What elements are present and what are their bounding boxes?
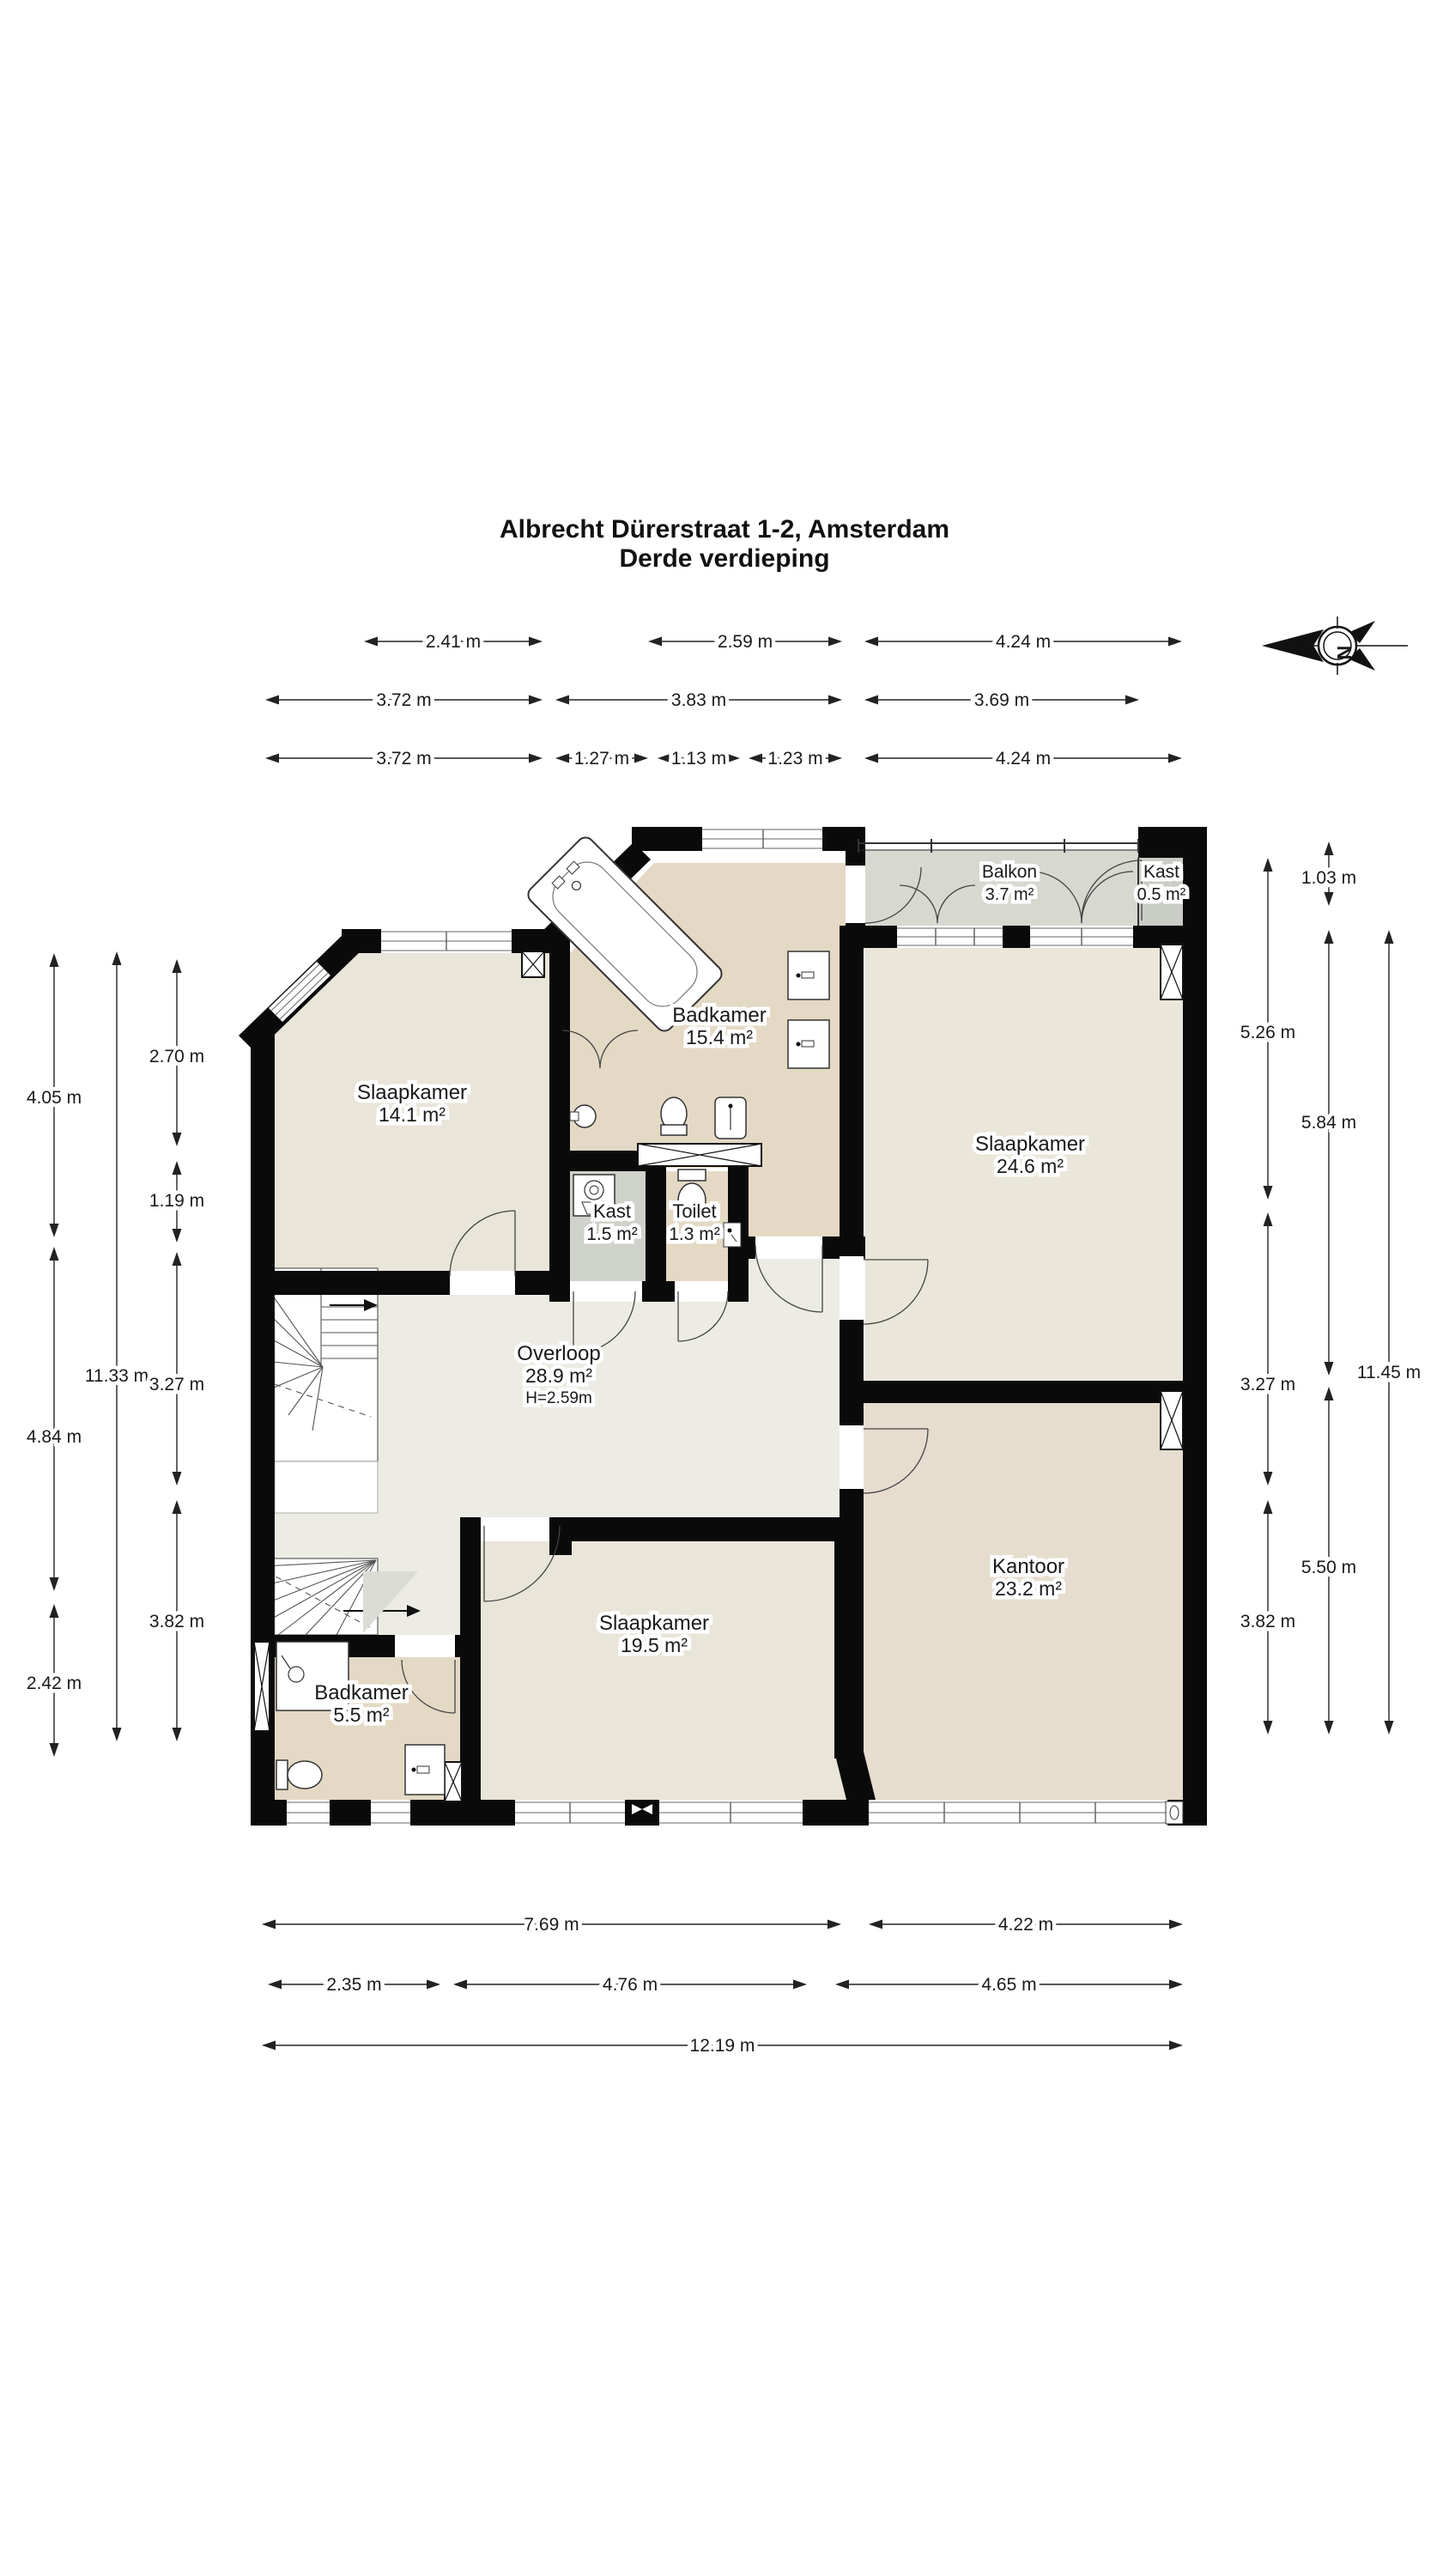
- room-label-slaapkamer-195: Slaapkamer: [599, 1612, 709, 1635]
- dimension-arrow: [648, 637, 662, 647]
- dimension-arrow: [726, 754, 740, 763]
- dimension-arrow: [173, 1728, 182, 1741]
- dimension-arrow: [869, 1920, 882, 1929]
- dimension-label: 5.26 m: [1240, 1023, 1295, 1042]
- dimension-label: 3.83 m: [671, 690, 726, 710]
- dimension-arrow: [265, 696, 279, 705]
- dimension-label: 11.45 m: [1357, 1363, 1421, 1382]
- fixture-toilet-tank: [678, 1170, 706, 1181]
- dimension-arrow: [453, 1980, 467, 1990]
- fixture-toilet-tank: [661, 1125, 687, 1135]
- room-label-badkamer-55: Badkamer: [314, 1681, 408, 1704]
- dimension-arrow: [828, 754, 842, 763]
- dimension-arrow: [555, 696, 569, 705]
- door-opening: [840, 1256, 864, 1320]
- fixture-tap: [412, 1768, 416, 1772]
- dimension-arrow: [173, 1500, 182, 1514]
- dimension-label: 1.27 m: [574, 749, 629, 769]
- dimension-label: 2.42 m: [27, 1674, 82, 1693]
- wall: [841, 1381, 1207, 1403]
- floor-kantoor: [864, 1403, 1183, 1800]
- fixture-flush-panel: [724, 1223, 741, 1247]
- fixture-shower-head: [288, 1667, 304, 1682]
- dimension-label: 4.65 m: [981, 1975, 1036, 1995]
- dimension-label: 4.24 m: [996, 749, 1051, 769]
- dimension-label: 4.24 m: [996, 632, 1051, 652]
- dimension-arrow: [173, 1229, 182, 1242]
- dimension-label: 3.69 m: [974, 690, 1029, 710]
- room-area-overloop: 28.9 m²: [525, 1364, 592, 1387]
- dimension-label: 2.59 m: [718, 632, 773, 652]
- door-opening: [675, 1281, 728, 1302]
- dimension-label: 4.76 m: [603, 1975, 658, 1995]
- fixture-tap: [570, 1112, 579, 1121]
- dimension-label: 3.27 m: [149, 1375, 204, 1394]
- room-area-slaapkamer-14: 14.1 m²: [379, 1103, 446, 1126]
- wall: [840, 926, 1207, 948]
- dimension-arrow: [1264, 1500, 1273, 1514]
- dimension-label: 1.03 m: [1301, 868, 1356, 888]
- dimension-arrow: [634, 754, 648, 763]
- room-area-kast-05: 0.5 m²: [1137, 885, 1186, 904]
- dimension-label: 2.70 m: [149, 1047, 204, 1066]
- dimension-arrow: [262, 2041, 276, 2050]
- dimension-arrow: [1325, 930, 1334, 944]
- dimension-arrow: [50, 1577, 59, 1591]
- dimension-label: 3.72 m: [376, 690, 431, 710]
- wall: [460, 1517, 481, 1800]
- dimension-arrow: [658, 754, 671, 763]
- dimension-label: 3.27 m: [1240, 1375, 1295, 1394]
- fixture-tap: [802, 1041, 814, 1047]
- dimension-arrow: [50, 1224, 59, 1237]
- room-area-badkamer-55: 5.5 m²: [333, 1704, 390, 1726]
- stairs-lower: [264, 1558, 378, 1635]
- dimension-label: 4.05 m: [27, 1088, 82, 1108]
- door-opening: [570, 1281, 642, 1302]
- wall: [1183, 827, 1207, 1826]
- room-label-kast-15: Kast: [593, 1200, 631, 1222]
- room-area-badkamer-15: 15.4 m²: [686, 1026, 753, 1048]
- dimension-arrow: [1125, 696, 1139, 705]
- door-opening: [450, 1271, 515, 1295]
- door-opening: [395, 1635, 455, 1657]
- dimension-arrow: [529, 637, 543, 647]
- dimension-arrow: [268, 1980, 282, 1990]
- dimension-arrow: [864, 696, 878, 705]
- room-area-kantoor: 23.2 m²: [995, 1577, 1062, 1600]
- dimension-arrow: [262, 1920, 276, 1929]
- dimension-arrow: [1325, 892, 1334, 906]
- fixture-tap: [797, 1042, 801, 1047]
- room-area-kast-15: 1.5 m²: [586, 1224, 638, 1244]
- dimension-label: 4.84 m: [27, 1427, 82, 1447]
- dimension-label: 11.33 m: [85, 1366, 149, 1386]
- dimension-arrow: [50, 953, 59, 967]
- dimension-arrow: [1385, 1721, 1394, 1735]
- dimension-label: 3.82 m: [149, 1612, 204, 1631]
- dimension-arrow: [749, 754, 762, 763]
- dimension-arrow: [1264, 1212, 1273, 1226]
- fixture-shower-panel: [729, 1104, 733, 1109]
- wall: [646, 1151, 666, 1302]
- dimension-arrow: [864, 637, 878, 647]
- dimension-arrow: [1169, 1920, 1183, 1929]
- dimension-arrow: [793, 1980, 807, 1990]
- dimension-arrow: [173, 1252, 182, 1266]
- dimension-arrow: [828, 696, 842, 705]
- dimension-arrow: [1168, 754, 1182, 763]
- room-label-badkamer-15: Badkamer: [672, 1004, 766, 1027]
- room-area-balkon: 3.7 m²: [985, 885, 1034, 904]
- dimension-label: 4.22 m: [998, 1915, 1053, 1935]
- fixture-radiator: [1166, 1801, 1183, 1824]
- dimension-label: 5.50 m: [1301, 1558, 1356, 1577]
- dimension-arrow: [173, 1472, 182, 1485]
- dimension-arrow: [1385, 930, 1394, 944]
- fixture-tap: [797, 974, 801, 978]
- dimension-label: 2.35 m: [326, 1975, 381, 1995]
- room-label-slaapkamer-246: Slaapkamer: [975, 1133, 1085, 1156]
- dimension-arrow: [173, 1133, 182, 1146]
- fixture-washing-machine-drum: [585, 1181, 603, 1200]
- room-area-slaapkamer-195: 19.5 m²: [621, 1634, 688, 1656]
- room-label-toilet-13: Toilet: [672, 1200, 716, 1222]
- dimension-label: 12.19 m: [690, 2036, 755, 2056]
- dimension-arrow: [50, 1247, 59, 1261]
- floorplan-page: { "title": {"line1": "Albrecht Dürerstra…: [0, 0, 1449, 2576]
- dimension-arrow: [1264, 1721, 1273, 1735]
- wall: [549, 939, 570, 1295]
- dimension-arrow: [1264, 1472, 1273, 1485]
- dimension-label: 5.84 m: [1301, 1113, 1356, 1133]
- wall: [263, 1271, 570, 1295]
- dimension-arrow: [1169, 1980, 1183, 1990]
- dimension-arrow: [828, 637, 842, 647]
- room-label-balkon: Balkon: [982, 862, 1037, 882]
- door-opening: [846, 866, 865, 923]
- dimension-arrow: [173, 959, 182, 973]
- fixture-tap: [417, 1766, 429, 1773]
- dimension-arrow: [835, 1980, 849, 1990]
- dimension-arrow: [173, 1161, 182, 1175]
- dimension-arrow: [427, 1980, 440, 1990]
- dimension-arrow: [1325, 1362, 1334, 1376]
- dimension-label: 3.82 m: [1240, 1612, 1295, 1631]
- dimension-arrow: [265, 754, 279, 763]
- dimension-arrow: [1264, 1186, 1273, 1200]
- room-area-slaapkamer-246: 24.6 m²: [997, 1155, 1064, 1177]
- compass-letter: N: [1333, 646, 1355, 660]
- room-height-overloop: H=2.59m: [525, 1389, 592, 1407]
- dimension-arrow: [1325, 1387, 1334, 1400]
- dimension-arrow: [1325, 841, 1334, 855]
- dimension-arrow: [364, 637, 378, 647]
- room-label-slaapkamer-14: Slaapkamer: [357, 1081, 467, 1104]
- dimension-label: 3.72 m: [376, 749, 431, 769]
- stairs-upper-landing: [264, 1461, 378, 1513]
- dimension-arrow: [50, 1743, 59, 1757]
- floorplan-canvas: Slaapkamer14.1 m²Badkamer15.4 m²Balkon3.…: [0, 0, 1449, 2576]
- dimension-arrow: [828, 1920, 841, 1929]
- fixture-tap: [802, 972, 814, 978]
- fixture-toilet-tank: [276, 1760, 288, 1789]
- door-opening: [481, 1517, 549, 1541]
- dimension-label: 1.13 m: [671, 749, 726, 769]
- dimension-label: 2.41 m: [426, 632, 481, 652]
- wall: [834, 1517, 864, 1759]
- room-label-kast-05: Kast: [1143, 862, 1179, 882]
- dimension-arrow: [529, 696, 543, 705]
- room-area-toilet-13: 1.3 m²: [669, 1224, 720, 1244]
- fixture-flush-panel: [728, 1229, 732, 1233]
- room-label-overloop: Overloop: [517, 1342, 600, 1365]
- wall: [549, 1541, 572, 1555]
- fixture-toilet-bowl: [288, 1761, 322, 1789]
- dimension-label: 7.69 m: [524, 1915, 579, 1935]
- dimension-arrow: [529, 754, 543, 763]
- dimension-arrow: [864, 754, 878, 763]
- dimension-arrow: [1169, 2041, 1183, 2050]
- dimension-arrow: [555, 754, 569, 763]
- dimension-label: 1.19 m: [149, 1191, 204, 1211]
- door-opening: [840, 1425, 864, 1489]
- dimension-arrow: [1325, 1721, 1334, 1735]
- dimension-label: 1.23 m: [767, 749, 822, 769]
- dimension-arrow: [1264, 858, 1273, 872]
- dimension-arrow: [112, 951, 122, 965]
- dimension-arrow: [50, 1604, 59, 1618]
- room-label-kantoor: Kantoor: [992, 1555, 1064, 1578]
- dimension-arrow: [112, 1728, 122, 1741]
- dimension-arrow: [1168, 637, 1182, 647]
- door-opening: [755, 1236, 822, 1259]
